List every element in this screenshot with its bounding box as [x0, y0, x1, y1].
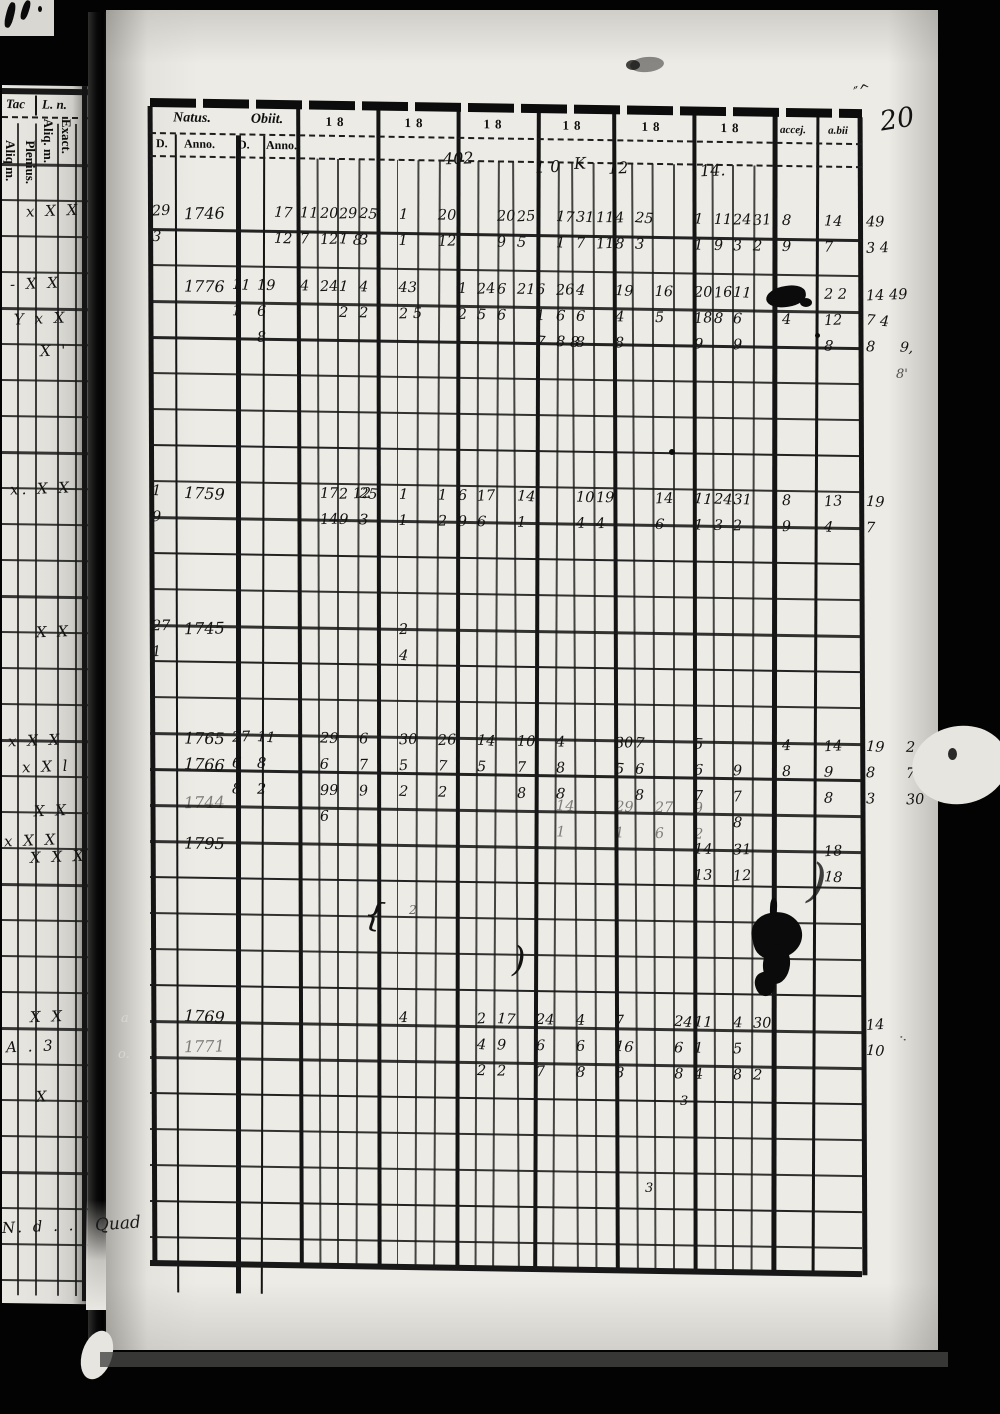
stray-mark: ·· — [895, 1031, 911, 1047]
ink-overlay: ao.″^9,8'{))233·· — [0, 0, 1000, 1414]
stray-mark: 3 — [680, 1095, 688, 1108]
ink-blob — [19, 0, 32, 21]
gutter-mark: a — [121, 1012, 129, 1025]
stray-mark: ) — [512, 943, 526, 978]
ink-blob — [626, 60, 640, 70]
stray-mark: ) — [806, 857, 828, 905]
stray-mark: 9, — [899, 340, 914, 355]
ink-blob — [669, 449, 675, 455]
stray-mark: 8' — [896, 368, 908, 381]
stray-mark: { — [362, 897, 387, 933]
ink-blob — [38, 6, 42, 12]
ink-blob — [815, 333, 820, 338]
ink-blob — [3, 1, 17, 28]
stray-mark: 3 — [645, 1182, 653, 1195]
gutter-mark: o. — [118, 1048, 130, 1061]
microfilm-frame: TacL. n.Exact.Aliq. m.Plenius.Aliq m.x X… — [0, 0, 1000, 1414]
stray-mark: 2 — [409, 904, 417, 916]
ink-blob — [800, 298, 812, 307]
stray-mark: ″^ — [852, 82, 872, 100]
